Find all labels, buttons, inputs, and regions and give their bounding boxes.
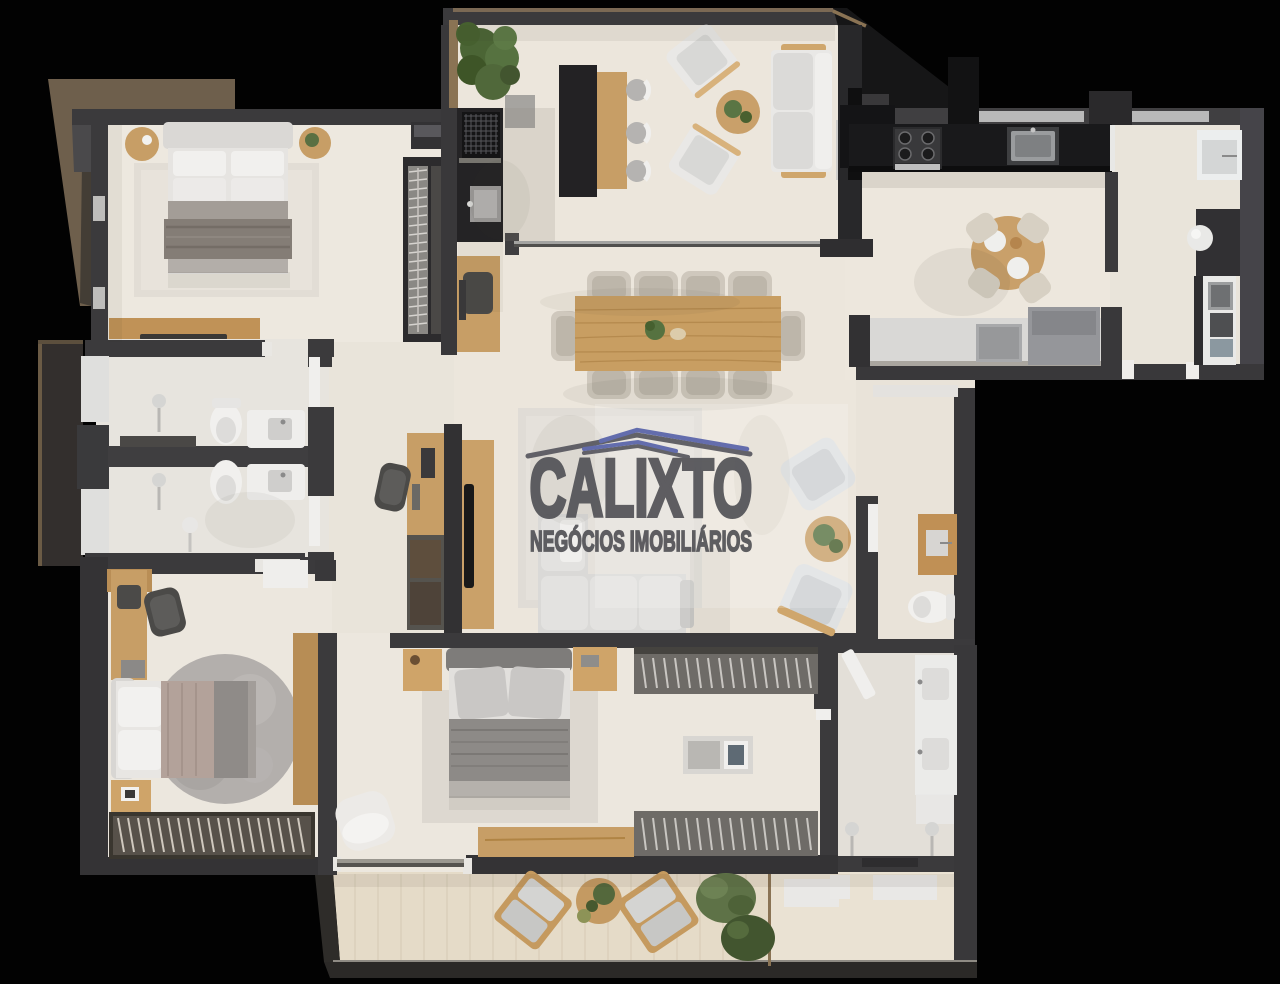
svg-text:CALIXTO: CALIXTO: [530, 443, 753, 534]
svg-text:NEGÓCIOS IMOBILIÁRIOS: NEGÓCIOS IMOBILIÁRIOS: [530, 524, 752, 558]
